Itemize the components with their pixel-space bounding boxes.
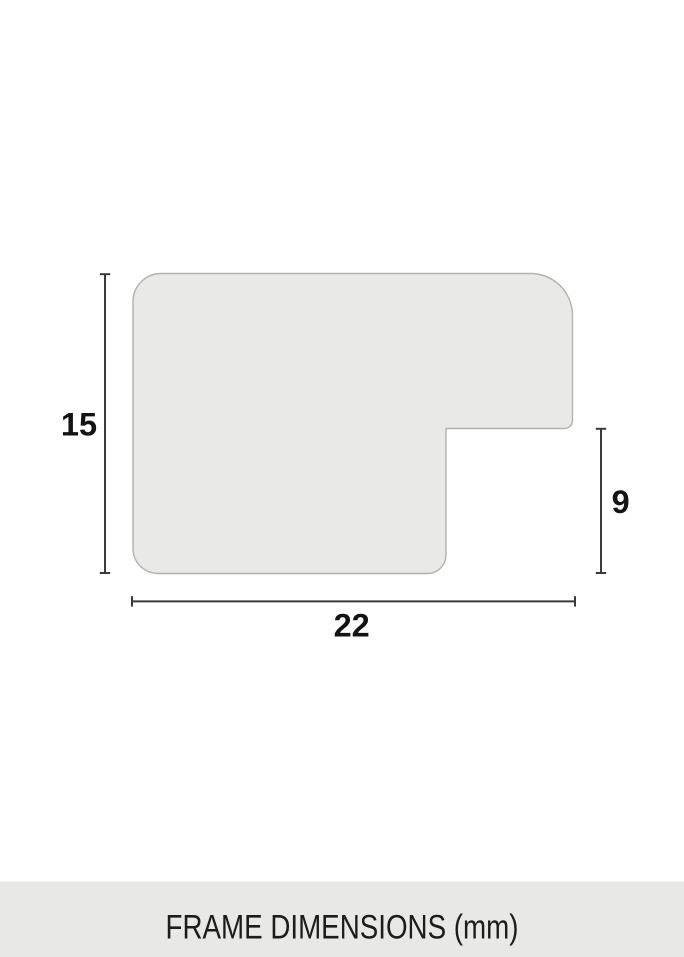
svg-text:9: 9 [612,484,630,520]
svg-text:22: 22 [334,608,370,644]
svg-text:15: 15 [61,406,97,442]
svg-text:FRAME DIMENSIONS (mm): FRAME DIMENSIONS (mm) [166,909,519,947]
